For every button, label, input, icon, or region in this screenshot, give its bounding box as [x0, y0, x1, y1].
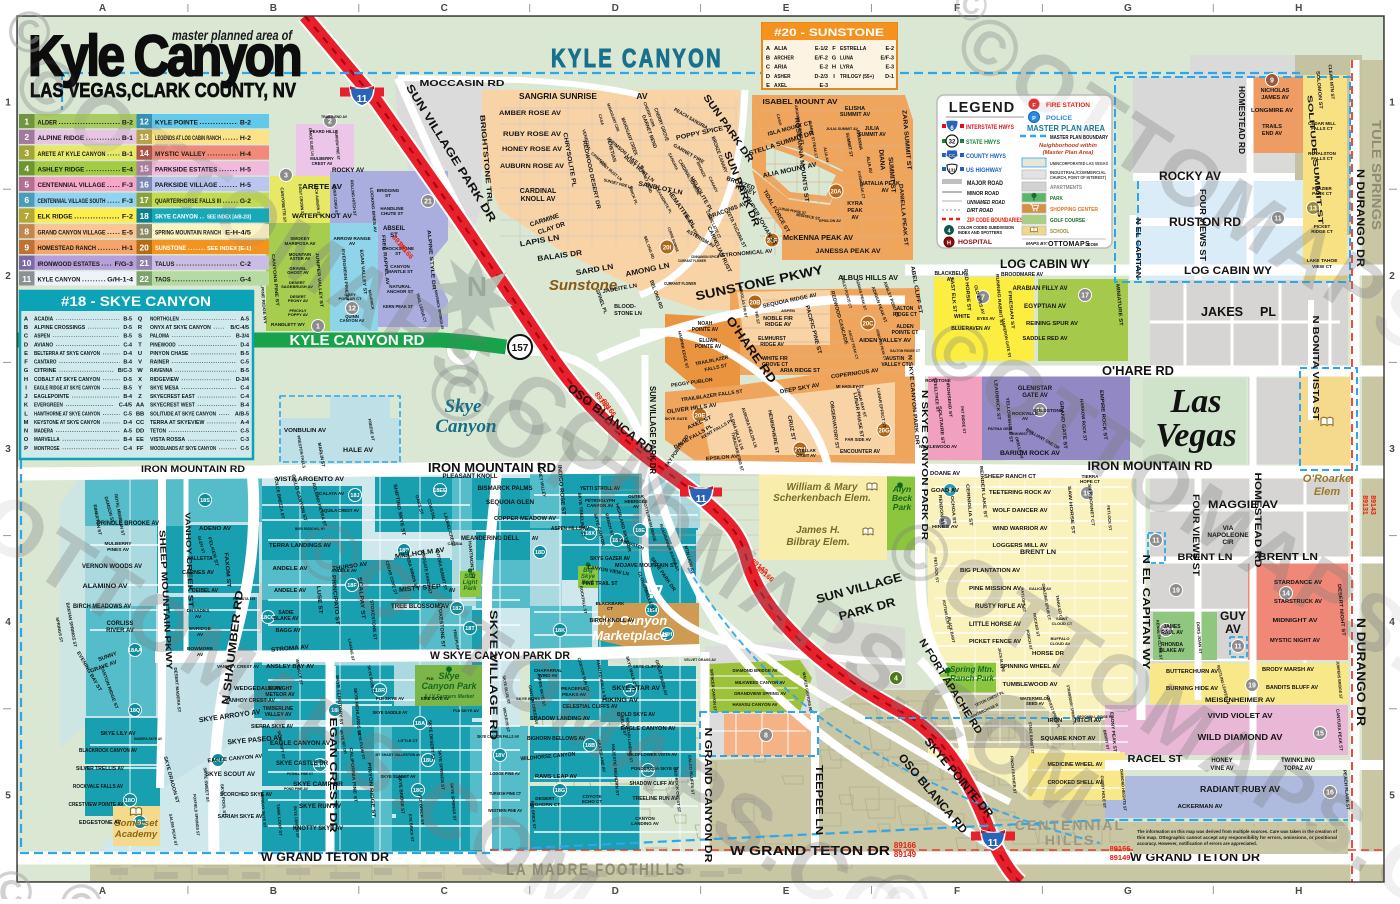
svg-text:TETON: TETON: [150, 429, 166, 435]
svg-text:LOG CABIN WY: LOG CABIN WY: [1000, 259, 1090, 271]
svg-text:E: E: [766, 83, 770, 89]
svg-text:B-4: B-4: [123, 394, 132, 400]
svg-text:ESTRELLA: ESTRELLA: [840, 46, 866, 52]
svg-text:CASSIA: CASSIA: [447, 541, 462, 546]
svg-text:10: 10: [22, 258, 32, 268]
svg-text:PINEWOOD: PINEWOOD: [150, 342, 176, 348]
svg-text:TRAILS END AV: TRAILS END AV: [321, 114, 347, 119]
svg-text:PEAK: PEAK: [847, 208, 862, 214]
svg-text:4: 4: [5, 617, 11, 628]
svg-text:G: G: [1124, 886, 1132, 897]
svg-text:11: 11: [988, 838, 999, 849]
svg-text:#20 - SUNSTONE: #20 - SUNSTONE: [774, 27, 884, 39]
svg-text:CC: CC: [136, 420, 145, 426]
svg-text:ECHO CT: ECHO CT: [582, 799, 603, 804]
svg-text:CENTENNIAL VILLAGE: CENTENNIAL VILLAGE: [38, 182, 106, 189]
svg-text:17: 17: [1081, 293, 1089, 300]
svg-text:BLAKE AV: BLAKE AV: [274, 616, 300, 622]
svg-text:NICKLEWOOD AV: NICKLEWOOD AV: [919, 444, 957, 449]
svg-text:C-5: C-5: [123, 411, 132, 417]
svg-text:TRAILS: TRAILS: [1262, 124, 1282, 130]
svg-text:C-4: C-4: [123, 342, 132, 348]
svg-text:MILKWEED CANYON AV: MILKWEED CANYON AV: [735, 680, 786, 686]
svg-text:11: 11: [1152, 538, 1160, 545]
svg-text:H: H: [1295, 886, 1302, 897]
svg-text:2: 2: [5, 271, 11, 282]
svg-text:POINTE AV: POINTE AV: [692, 327, 719, 333]
svg-text:Marketplace: Marketplace: [592, 628, 667, 643]
svg-text:D: D: [612, 3, 619, 14]
svg-text:CARDINAL: CARDINAL: [520, 188, 557, 195]
svg-text:Bilbray Elem.: Bilbray Elem.: [786, 537, 849, 548]
svg-text:LODGE PINE AV: LODGE PINE AV: [490, 771, 520, 776]
svg-text:18K: 18K: [555, 628, 565, 634]
svg-text:VALLEY CT: VALLEY CT: [881, 362, 908, 368]
svg-text:KYRA: KYRA: [847, 201, 863, 207]
svg-text:C-4: C-4: [240, 394, 249, 400]
svg-text:18Q: 18Q: [130, 708, 141, 714]
svg-text:AV: AV: [636, 91, 648, 101]
svg-text:BLACKROCK CANYON AV: BLACKROCK CANYON AV: [79, 748, 138, 754]
svg-text:A: A: [99, 3, 106, 14]
svg-text:20B: 20B: [749, 301, 761, 307]
svg-text:V: V: [138, 360, 142, 366]
svg-text:B/C-4/5: B/C-4/5: [230, 325, 249, 331]
svg-text:CURRANT FLOWER: CURRANT FLOWER: [664, 281, 697, 286]
svg-text:O: O: [24, 437, 29, 443]
svg-text:GOAD AV: GOAD AV: [931, 488, 960, 494]
svg-text:B-3/4: B-3/4: [236, 334, 249, 340]
svg-text:ONYX AT SKYE CANYON: ONYX AT SKYE CANYON: [150, 325, 211, 331]
svg-text:COBALT AT SKYE CANYON: COBALT AT SKYE CANYON: [34, 377, 100, 383]
svg-text:ISABEL MOUNT AV: ISABEL MOUNT AV: [763, 97, 838, 106]
svg-text:B-4: B-4: [240, 403, 249, 409]
svg-text:E/F-3: E/F-3: [881, 55, 894, 61]
svg-text:EAGLE RIDGE AT SKYE CANYON: EAGLE RIDGE AT SKYE CANYON: [34, 385, 100, 391]
svg-text:18S: 18S: [200, 498, 210, 504]
svg-text:LYRA: LYRA: [840, 65, 853, 71]
svg-text:MONTROSE: MONTROSE: [34, 446, 60, 452]
svg-text:18O: 18O: [125, 798, 136, 804]
svg-text:G-4: G-4: [240, 277, 251, 284]
svg-text:A-5: A-5: [123, 429, 132, 435]
svg-text:32: 32: [949, 140, 956, 146]
svg-text:RIDGE AV: RIDGE AV: [765, 322, 791, 328]
svg-text:N: N: [467, 271, 487, 302]
svg-text:D-4: D-4: [123, 351, 132, 357]
svg-text:11: 11: [1234, 644, 1242, 651]
svg-text:ALPINE CROSSINGS: ALPINE CROSSINGS: [34, 325, 86, 331]
svg-text:VALLETTA: VALLETTA: [187, 556, 213, 562]
svg-text:EE: EE: [136, 437, 144, 443]
svg-text:©: ©: [60, 873, 103, 899]
svg-text:E-3: E-3: [819, 83, 828, 89]
svg-text:G: G: [832, 55, 837, 61]
svg-text:©: ©: [0, 860, 33, 899]
svg-text:ZIP CODE BOUNDARIES: ZIP CODE BOUNDARIES: [967, 218, 1023, 224]
svg-text:ROCKVALE FALLS AV: ROCKVALE FALLS AV: [73, 784, 124, 790]
svg-text:G: G: [24, 368, 29, 374]
svg-text:POINTE CT: POINTE CT: [892, 330, 919, 336]
svg-text:ROCKY AV: ROCKY AV: [332, 168, 364, 174]
svg-text:J: J: [24, 394, 27, 400]
svg-text:Las: Las: [1170, 383, 1222, 420]
svg-text:SANGRIA SUNRISE: SANGRIA SUNRISE: [519, 91, 597, 101]
svg-text:F-2: F-2: [122, 214, 133, 221]
svg-text:D-5: D-5: [123, 377, 132, 383]
svg-text:AA: AA: [136, 403, 145, 409]
svg-text:TERRA AT SKYEVIEW: TERRA AT SKYEVIEW: [150, 420, 205, 426]
svg-text:18A: 18A: [415, 721, 425, 727]
svg-text:E-5: E-5: [122, 229, 133, 236]
svg-text:19: 19: [139, 227, 149, 237]
svg-text:B/C-3: B/C-3: [118, 368, 132, 374]
svg-text:20C: 20C: [862, 322, 874, 328]
svg-text:W GRAND TETON DR: W GRAND TETON DR: [261, 850, 389, 864]
svg-text:BAGG AV: BAGG AV: [275, 628, 300, 634]
svg-text:SHOPPING CENTER: SHOPPING CENTER: [1050, 207, 1099, 213]
svg-text:SUMMIT AV: SUMMIT AV: [840, 112, 871, 118]
svg-text:9: 9: [1270, 78, 1274, 85]
svg-text:SILVER TRELLIS AV: SILVER TRELLIS AV: [76, 766, 125, 772]
svg-text:20I: 20I: [663, 246, 672, 252]
svg-text:RIDGE CT: RIDGE CT: [893, 312, 917, 318]
svg-text:C-4: C-4: [123, 446, 132, 452]
svg-text:BIRCH KNOLL AV: BIRCH KNOLL AV: [590, 618, 635, 624]
svg-text:B-5: B-5: [123, 334, 132, 340]
svg-text:VONBULIN AV: VONBULIN AV: [284, 428, 326, 434]
svg-text:SKYE RUN AV: SKYE RUN AV: [299, 804, 341, 810]
svg-text:ENCOUNTER AV: ENCOUNTER AV: [840, 449, 881, 455]
svg-text:NORTHGLEN: NORTHGLEN: [150, 317, 179, 323]
svg-text:W: W: [137, 368, 143, 374]
svg-text:ASPEN: ASPEN: [34, 334, 50, 340]
svg-text:CREST AV: CREST AV: [312, 161, 333, 166]
svg-text:IRON MOUNTAIN RD: IRON MOUNTAIN RD: [141, 464, 246, 474]
svg-text:FIJI SKYE AV: FIJI SKYE AV: [376, 696, 404, 701]
svg-text:D-4: D-4: [240, 342, 249, 348]
svg-text:#18 - SKYE CANYON: #18 - SKYE CANYON: [61, 294, 211, 309]
svg-text:KNOLL AV: KNOLL AV: [521, 196, 556, 203]
svg-text:RAMS LEAP AV: RAMS LEAP AV: [535, 774, 578, 780]
svg-text:11: 11: [357, 94, 368, 105]
svg-text:SKYE LILY AV: SKYE LILY AV: [101, 731, 137, 737]
svg-text:ELK RIDGE: ELK RIDGE: [38, 214, 74, 221]
svg-text:H: H: [947, 241, 951, 247]
svg-text:AUBURN ROSE AV: AUBURN ROSE AV: [500, 163, 565, 170]
svg-text:6: 6: [24, 195, 29, 205]
svg-text:AV: AV: [881, 188, 889, 194]
svg-text:AIDEN VALLEY AV: AIDEN VALLEY AV: [859, 338, 911, 344]
svg-text:11: 11: [22, 274, 31, 284]
svg-text:F-3: F-3: [122, 198, 133, 205]
svg-text:B-5: B-5: [240, 351, 249, 357]
svg-text:HOMESTEAD RD: HOMESTEAD RD: [1237, 86, 1247, 154]
svg-text:H-2: H-2: [240, 135, 251, 142]
svg-text:POND PINE AV: POND PINE AV: [284, 786, 308, 791]
svg-text:21: 21: [424, 199, 432, 206]
svg-text:P: P: [24, 446, 28, 452]
svg-text:JANESSA PEAK AV: JANESSA PEAK AV: [816, 248, 882, 255]
svg-text:HONEY ROSE AV: HONEY ROSE AV: [502, 146, 563, 153]
svg-text:WIND WARRIOR AV: WIND WARRIOR AV: [993, 526, 1048, 532]
svg-text:8: 8: [764, 733, 768, 740]
svg-text:GUY: GUY: [1220, 609, 1246, 623]
svg-text:H: H: [832, 65, 836, 71]
svg-text:APARTMENTS: APARTMENTS: [1050, 185, 1082, 191]
svg-text:U: U: [138, 351, 142, 357]
svg-text:PLEASANT KNOLL: PLEASANT KNOLL: [443, 474, 498, 480]
svg-text:.COM: .COM: [1086, 242, 1098, 247]
svg-text:REINING SPUR AV: REINING SPUR AV: [1026, 321, 1078, 327]
svg-text:IRONWOOD ESTATES: IRONWOOD ESTATES: [38, 261, 101, 268]
svg-text:D-2/3: D-2/3: [815, 74, 828, 80]
svg-text:BB: BB: [136, 411, 144, 417]
svg-text:19: 19: [1172, 588, 1180, 595]
svg-text:B-5: B-5: [123, 385, 132, 391]
svg-text:89166: 89166: [894, 841, 917, 850]
svg-text:SKYE MESA: SKYE MESA: [150, 385, 179, 391]
svg-text:ACADIA: ACADIA: [34, 317, 53, 323]
svg-text:B: B: [270, 886, 277, 897]
svg-text:Park: Park: [893, 502, 913, 512]
svg-text:A-5: A-5: [240, 317, 249, 323]
svg-text:C-4/5: C-4/5: [119, 403, 132, 409]
svg-text:KYLE CANYON: KYLE CANYON: [38, 277, 81, 284]
svg-text:EPSILON AV: EPSILON AV: [819, 219, 841, 223]
svg-text:PARK: PARK: [1050, 196, 1063, 202]
svg-text:KEYSTONE AT SKYE CANYON: KEYSTONE AT SKYE CANYON: [34, 420, 100, 426]
svg-text:FIJI SKYE AV: FIJI SKYE AV: [453, 708, 479, 713]
svg-text:GRANDVIEW SPRING AV: GRANDVIEW SPRING AV: [734, 691, 787, 697]
svg-text:D: D: [766, 74, 770, 80]
svg-text:ARCHER: ARCHER: [774, 55, 794, 61]
svg-text:89149: 89149: [1110, 853, 1131, 862]
svg-text:18V: 18V: [495, 753, 505, 759]
svg-text:ASHLEY RIDGE: ASHLEY RIDGE: [38, 166, 85, 173]
svg-text:NICHOLAS: NICHOLAS: [1261, 88, 1290, 94]
svg-text:RAVENNA: RAVENNA: [150, 368, 172, 374]
svg-text:VELVET GRASS AV: VELVET GRASS AV: [684, 657, 716, 662]
svg-text:C-5: C-5: [240, 360, 249, 366]
svg-text:RIDGEVIEW: RIDGEVIEW: [150, 377, 180, 383]
svg-text:ARABIAN FILLY AV: ARABIAN FILLY AV: [1013, 286, 1068, 292]
svg-text:TULE SPRINGS: TULE SPRINGS: [1369, 120, 1384, 230]
svg-text:McKENNA PEAK AV: McKENNA PEAK AV: [783, 235, 853, 242]
svg-text:James H.: James H.: [796, 525, 840, 536]
svg-text:B-4: B-4: [123, 360, 132, 366]
svg-text:SKYE GAZER AV: SKYE GAZER AV: [590, 556, 631, 562]
svg-text:E-3: E-3: [885, 65, 894, 71]
svg-text:PINE TRAIL ST: PINE TRAIL ST: [583, 581, 618, 587]
svg-text:AV: AV: [1225, 622, 1241, 636]
svg-text:HALE AV: HALE AV: [343, 448, 373, 454]
svg-text:OTTOMAPS: OTTOMAPS: [1048, 241, 1090, 248]
svg-text:M: M: [24, 420, 29, 426]
svg-text:Z: Z: [138, 394, 142, 400]
svg-text:3: 3: [24, 148, 29, 158]
svg-text:BELTERRA AT SKYE CANYON: BELTERRA AT SKYE CANYON: [34, 351, 100, 357]
svg-text:F/G-3: F/G-3: [115, 261, 134, 268]
svg-text:N BONITA VISTA ST: N BONITA VISTA ST: [1311, 316, 1321, 422]
svg-text:18G: 18G: [555, 788, 565, 794]
svg-text:B: B: [24, 325, 28, 331]
svg-text:B-2: B-2: [240, 119, 251, 126]
svg-text:E-2: E-2: [885, 46, 894, 52]
svg-text:SKYECREST EAST: SKYECREST EAST: [150, 394, 195, 400]
svg-text:EGYPTIAN AV: EGYPTIAN AV: [1024, 304, 1066, 310]
svg-text:22: 22: [139, 274, 149, 284]
svg-text:SKYE CANYON FALLS AV: SKYE CANYON FALLS AV: [477, 734, 519, 739]
svg-text:COUNTY HWYS: COUNTY HWYS: [966, 153, 1007, 160]
svg-text:3: 3: [5, 444, 11, 455]
svg-text:MAJOR ROAD: MAJOR ROAD: [967, 181, 1004, 187]
svg-text:HAVASU CANYON AV: HAVASU CANYON AV: [733, 702, 779, 708]
svg-text:18J: 18J: [350, 493, 359, 499]
svg-text:CT: CT: [607, 606, 613, 611]
svg-text:20: 20: [139, 242, 149, 252]
svg-text:VISTA ARGENTO AV: VISTA ARGENTO AV: [276, 476, 345, 483]
svg-text:20A: 20A: [830, 190, 842, 196]
svg-text:E: E: [783, 3, 790, 14]
svg-text:RAINER: RAINER: [150, 360, 169, 366]
svg-text:BANDITS BLUFF AV: BANDITS BLUFF AV: [1266, 685, 1318, 691]
svg-text:5: 5: [24, 179, 29, 189]
svg-text:BLOOD-: BLOOD-: [614, 304, 636, 310]
svg-text:EDGESTONE AV: EDGESTONE AV: [79, 820, 121, 826]
svg-text:19: 19: [1248, 683, 1256, 690]
svg-text:SEED AV: SEED AV: [1026, 701, 1044, 706]
svg-text:AMBER ROSE AV: AMBER ROSE AV: [499, 110, 562, 117]
svg-text:B: B: [270, 3, 277, 14]
svg-text:EVERGREEN: EVERGREEN: [34, 403, 63, 409]
svg-text:ARIA RIDGE ST: ARIA RIDGE ST: [780, 368, 820, 374]
svg-text:C-5: C-5: [240, 429, 249, 435]
svg-text:accuracy. However, notificatio: accuracy. However, notification of error…: [1137, 841, 1257, 846]
svg-text:FIJI: FIJI: [427, 676, 434, 681]
svg-text:Q: Q: [138, 317, 143, 323]
svg-text:G: G: [1124, 3, 1132, 14]
svg-text:DD: DD: [136, 429, 144, 435]
svg-text:CANTARO: CANTARO: [34, 360, 57, 366]
svg-text:E-2: E-2: [819, 65, 828, 71]
svg-text:TRILOGY (55+): TRILOGY (55+): [840, 74, 874, 80]
svg-text:HOSPITAL: HOSPITAL: [958, 239, 992, 246]
svg-text:7: 7: [24, 211, 29, 221]
svg-text:S: S: [138, 334, 142, 340]
svg-text:EIRE SKYE AV: EIRE SKYE AV: [421, 696, 449, 701]
svg-text:MAPS BY:: MAPS BY:: [1026, 241, 1048, 246]
svg-text:CITRINE: CITRINE: [34, 368, 57, 374]
svg-text:131: 131: [949, 168, 957, 173]
svg-text:DOANE AV: DOANE AV: [930, 471, 961, 477]
svg-text:E: E: [24, 351, 28, 357]
svg-text:D-4: D-4: [123, 420, 132, 426]
svg-text:A-4: A-4: [240, 420, 249, 426]
svg-text:O'HARE RD: O'HARE RD: [1102, 364, 1174, 378]
svg-text:SHEEP RANCH CT: SHEEP RANCH CT: [984, 474, 1036, 480]
svg-text:MARVELLA: MARVELLA: [34, 437, 60, 443]
svg-text:JAKES: JAKES: [1201, 305, 1243, 319]
svg-text:CRESTVIEW POINTE AV: CRESTVIEW POINTE AV: [69, 802, 125, 808]
svg-text:SADDLE RED AV: SADDLE RED AV: [1023, 336, 1068, 342]
svg-text:HAWTHORNE AT SKYE CANYON: HAWTHORNE AT SKYE CANYON: [34, 411, 100, 417]
svg-text:TALUS: TALUS: [155, 261, 175, 268]
svg-text:ST: ST: [395, 251, 401, 256]
svg-text:EAGLEPOINTE: EAGLEPOINTE: [34, 394, 69, 400]
svg-text:MINOR ROAD: MINOR ROAD: [967, 191, 999, 197]
svg-text:E-1/2: E-1/2: [815, 46, 828, 52]
svg-text:BRODY MARSH AV: BRODY MARSH AV: [1262, 667, 1314, 673]
svg-text:ORBIT AV: ORBIT AV: [796, 453, 816, 458]
svg-text:H: H: [24, 377, 28, 383]
svg-text:CURRANT FLOWER: CURRANT FLOWER: [678, 259, 706, 263]
svg-text:HOMESTEAD RANCH: HOMESTEAD RANCH: [38, 245, 97, 252]
svg-text:LUNA: LUNA: [840, 55, 853, 61]
svg-text:GOLF COURSE: GOLF COURSE: [1050, 218, 1085, 224]
svg-text:MYSTIC NIGHT AV: MYSTIC NIGHT AV: [1270, 638, 1320, 644]
svg-text:RAUL AV: RAUL AV: [1161, 630, 1183, 636]
svg-text:Elem: Elem: [1314, 486, 1341, 498]
svg-text:RUBY ROSE AV: RUBY ROSE AV: [503, 131, 562, 138]
svg-text:5: 5: [1389, 790, 1395, 801]
svg-text:ST: ST: [385, 193, 391, 198]
svg-text:C-3: C-3: [240, 437, 249, 443]
svg-text:15: 15: [1316, 731, 1324, 738]
svg-text:ANDELE AV: ANDELE AV: [274, 588, 306, 594]
svg-text:ADENO AV: ADENO AV: [199, 526, 232, 532]
svg-text:SUNSTONE: SUNSTONE: [155, 245, 187, 252]
svg-text:8: 8: [24, 227, 29, 237]
svg-text:ASHER: ASHER: [774, 74, 791, 80]
svg-text:D: D: [24, 342, 28, 348]
svg-text:E/F-2: E/F-2: [815, 55, 828, 61]
svg-text:JULIA SUMMIT AV: JULIA SUMMIT AV: [826, 126, 858, 131]
svg-text:1: 1: [316, 324, 320, 331]
svg-text:H-4: H-4: [240, 151, 251, 158]
svg-text:PINYON CHASE: PINYON CHASE: [150, 351, 189, 357]
svg-text:AVIANO: AVIANO: [34, 342, 54, 348]
svg-text:D-1: D-1: [885, 74, 894, 80]
svg-text:C-4: C-4: [240, 385, 249, 391]
svg-text:SALTON RIDGE CT: SALTON RIDGE CT: [890, 348, 920, 353]
svg-text:H-1: H-1: [122, 245, 133, 252]
svg-text:SKYECREST WEST: SKYECREST WEST: [150, 403, 195, 409]
svg-text:B: B: [766, 55, 770, 61]
svg-text:5: 5: [5, 790, 11, 801]
svg-text:RANDLETT WY: RANDLETT WY: [271, 322, 306, 328]
svg-text:F: F: [24, 360, 28, 366]
svg-text:3: 3: [284, 173, 288, 180]
svg-text:SOLITUDE AT SKYE CANYON: SOLITUDE AT SKYE CANYON: [150, 411, 216, 417]
svg-text:3: 3: [1389, 444, 1395, 455]
svg-text:N EL CAPITAN: N EL CAPITAN: [1134, 218, 1143, 278]
svg-text:SKYE CLIFF AV: SKYE CLIFF AV: [633, 664, 663, 669]
svg-text:ASPEN: ASPEN: [781, 308, 795, 313]
svg-text:POINTE AV: POINTE AV: [695, 344, 722, 350]
svg-text:2: 2: [328, 119, 332, 126]
svg-text:BRENT LN: BRENT LN: [1020, 549, 1056, 556]
svg-text:X: X: [138, 377, 142, 383]
svg-text:MADERA: MADERA: [34, 429, 53, 435]
svg-text:B-5: B-5: [240, 368, 249, 374]
svg-text:18: 18: [139, 211, 149, 221]
svg-text:F: F: [832, 46, 836, 52]
svg-text:MOCCASIN RD: MOCCASIN RD: [420, 78, 505, 88]
svg-text:N: N: [24, 429, 28, 435]
svg-text:SKYE SCOUT AV: SKYE SCOUT AV: [205, 772, 255, 778]
svg-text:JAMES AV: JAMES AV: [1261, 95, 1289, 101]
